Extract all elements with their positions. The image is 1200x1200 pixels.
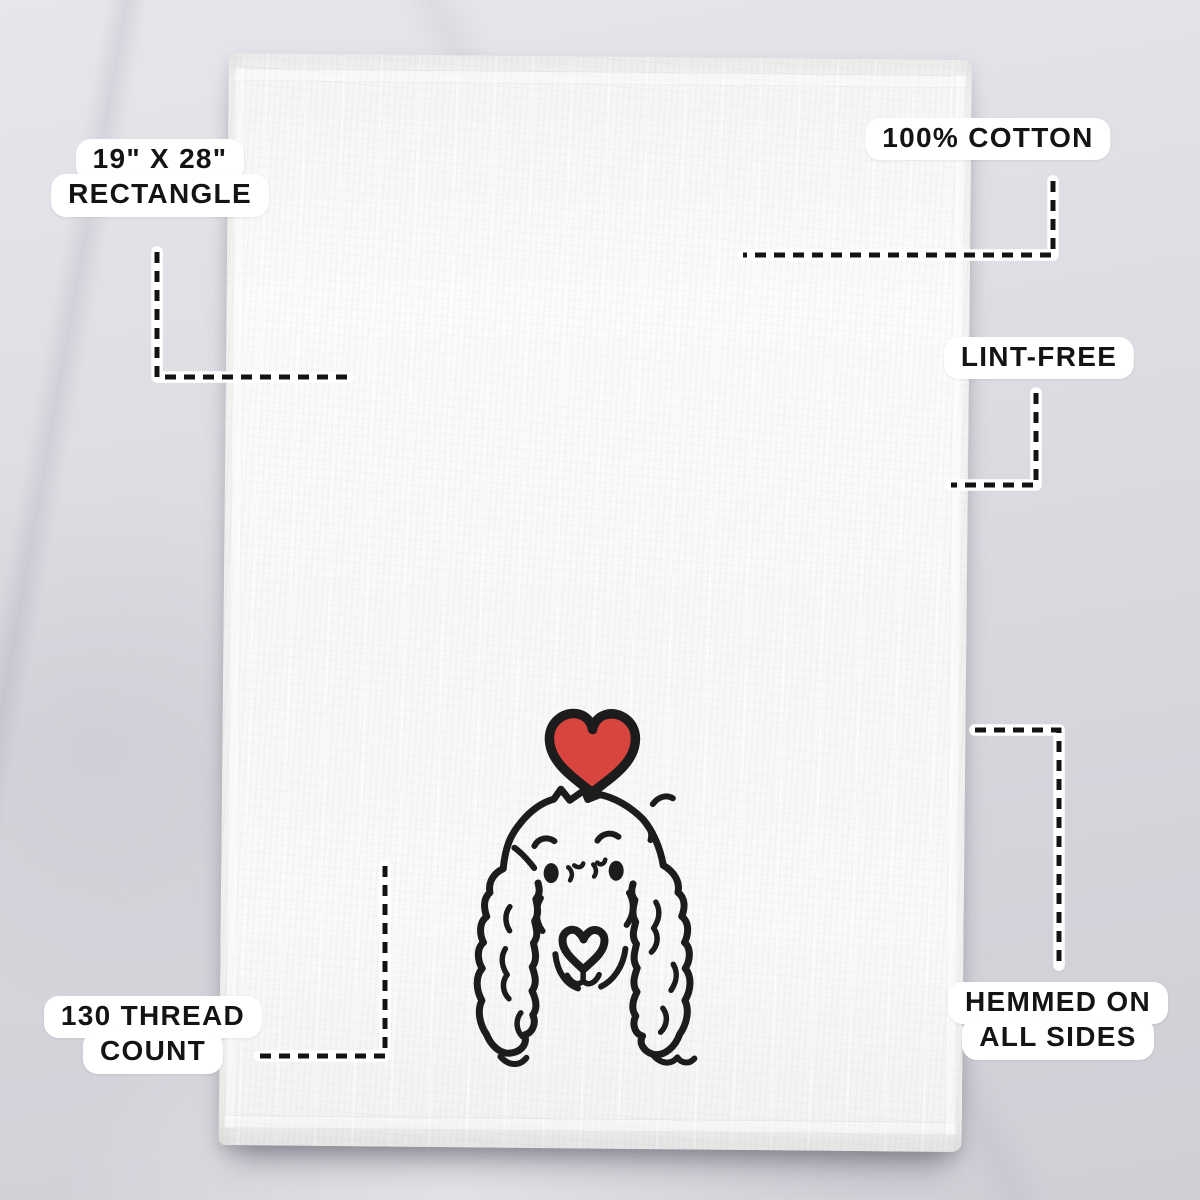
marble-surface: { "scene": { "type": "product-feature-in…	[0, 0, 1200, 1200]
heart-icon	[549, 713, 636, 793]
cocker-spaniel-face	[476, 788, 697, 1065]
callout-size: 19" X 28" RECTANGLE	[51, 139, 269, 217]
callout-lint-line-1: LINT-FREE	[944, 337, 1134, 379]
towel-hem-top	[234, 68, 967, 88]
callout-lint: LINT-FREE	[944, 337, 1134, 379]
tea-towel	[219, 53, 972, 1152]
towel-hem-bottom	[224, 1115, 957, 1135]
callout-hem-line-2: ALL SIDES	[962, 1017, 1153, 1059]
callout-thread: 130 THREAD COUNT	[44, 996, 262, 1074]
callout-material-line-1: 100% COTTON	[865, 118, 1110, 160]
towel-hem-left	[225, 68, 246, 1128]
leader-line-hem	[975, 730, 1059, 965]
callout-size-line-2: RECTANGLE	[51, 174, 269, 216]
callout-material: 100% COTTON	[865, 118, 1110, 160]
callout-hem: HEMMED ON ALL SIDES	[948, 982, 1168, 1060]
towel-hem-right	[945, 75, 966, 1135]
dog-heart-print	[444, 700, 740, 1085]
callout-thread-line-2: COUNT	[83, 1031, 223, 1073]
